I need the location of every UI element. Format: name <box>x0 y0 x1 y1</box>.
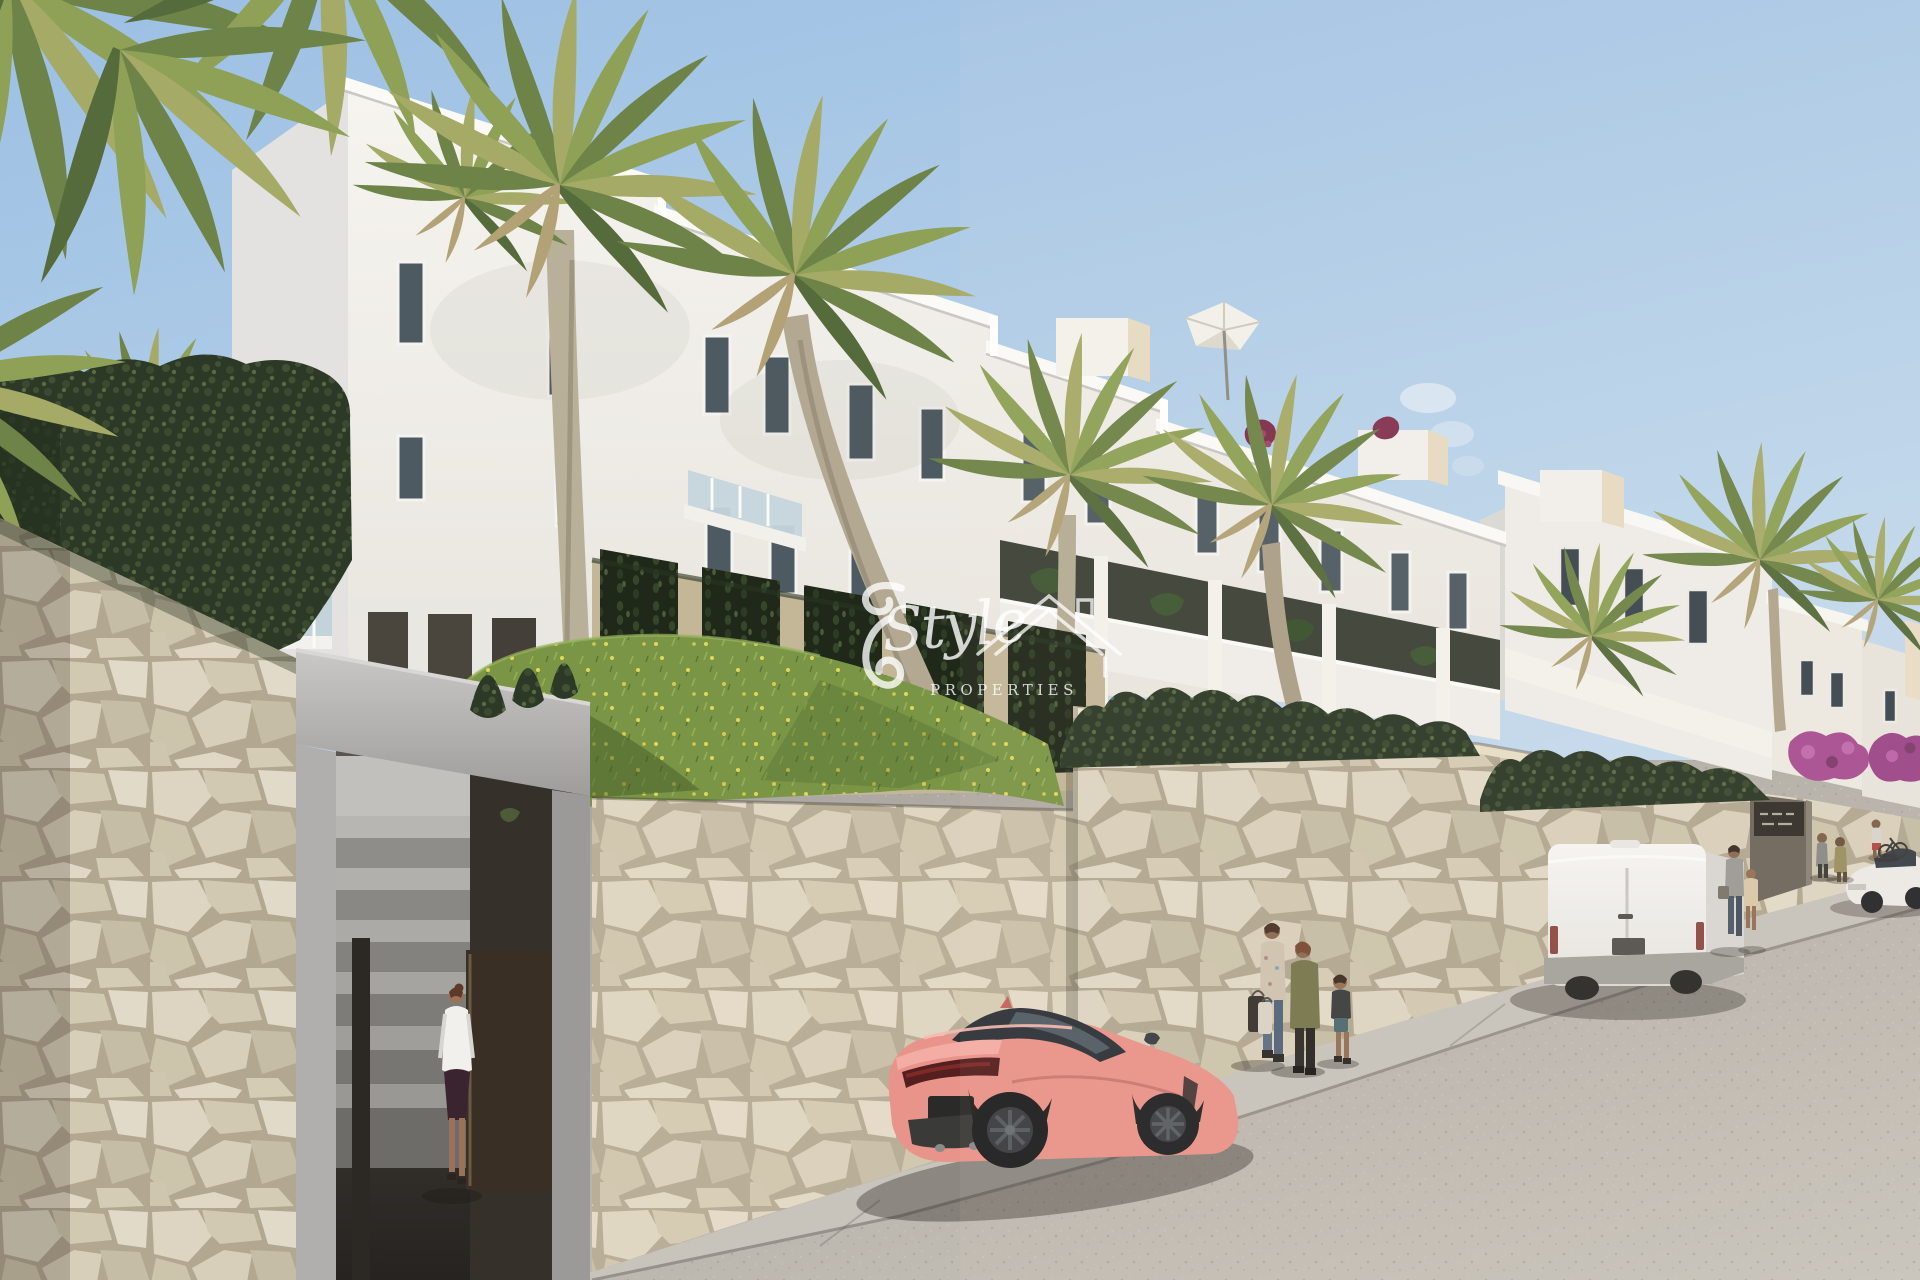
entrance-door <box>466 950 554 1190</box>
property-render-image: Style PROPERTIES <box>0 0 1920 1280</box>
render-scene <box>0 0 1920 1280</box>
open-gate-leaf <box>352 938 370 1280</box>
sunlight-wash <box>960 0 1920 1280</box>
entrance-pavilion <box>296 650 590 1280</box>
